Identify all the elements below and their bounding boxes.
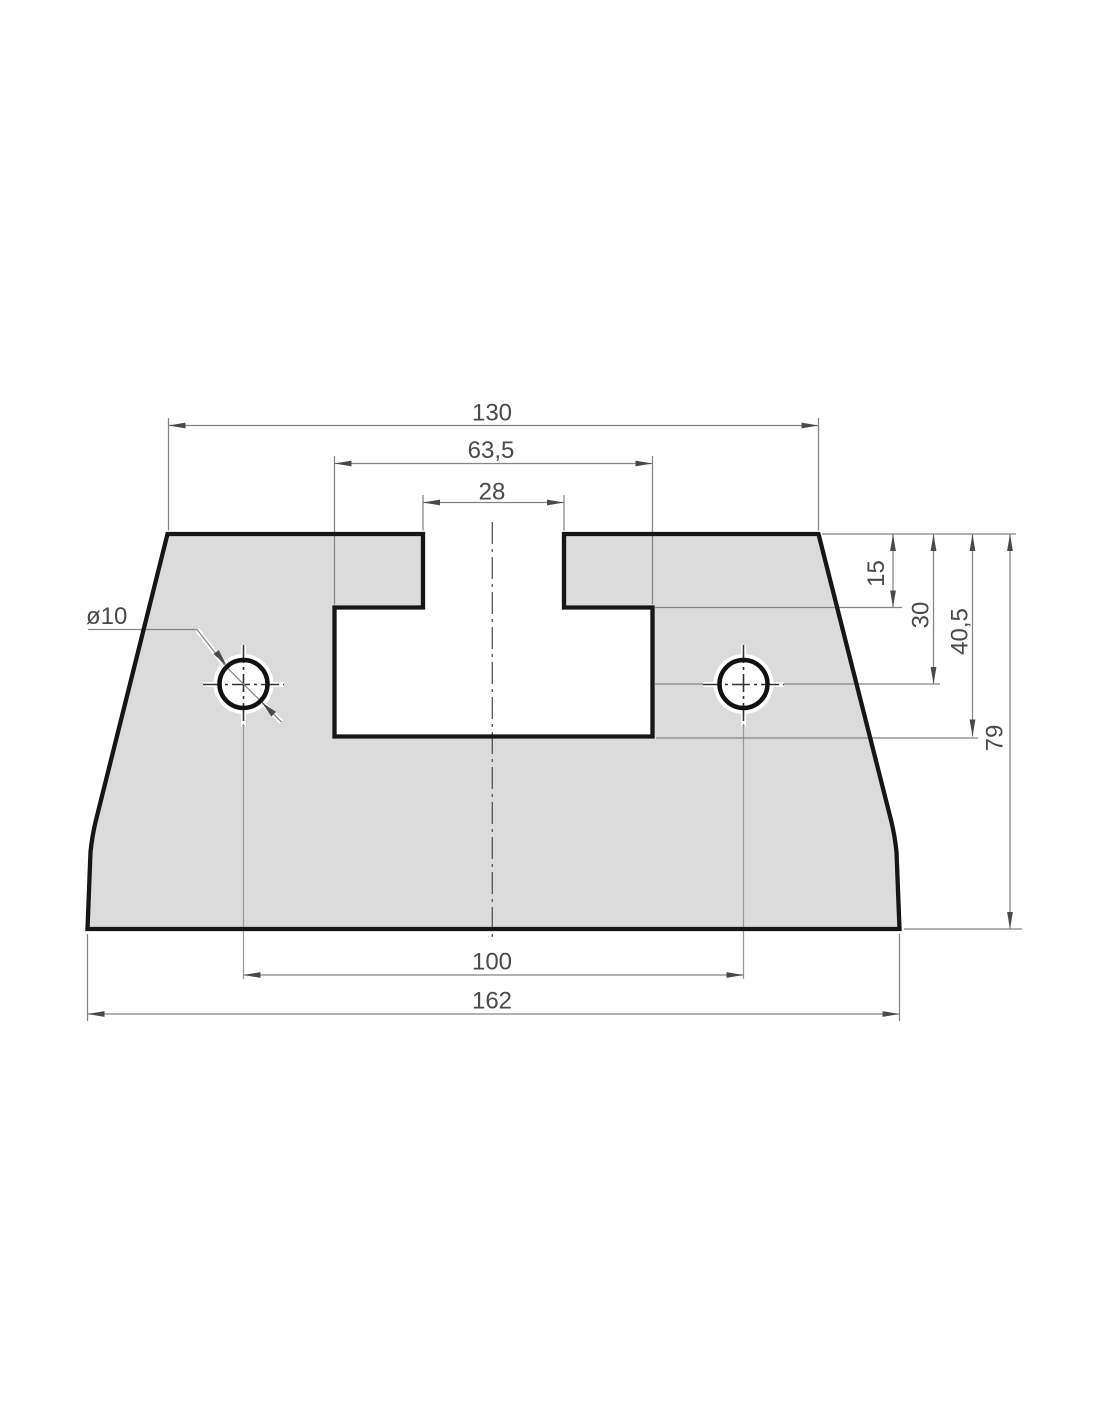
svg-text:100: 100 <box>472 949 512 976</box>
svg-text:162: 162 <box>472 988 512 1015</box>
svg-text:79: 79 <box>982 725 1009 752</box>
svg-text:28: 28 <box>479 479 506 506</box>
svg-text:63,5: 63,5 <box>468 437 515 464</box>
svg-text:15: 15 <box>863 560 890 587</box>
svg-text:130: 130 <box>472 400 512 427</box>
svg-text:30: 30 <box>908 602 935 629</box>
svg-text:ø10: ø10 <box>86 603 127 630</box>
svg-text:40,5: 40,5 <box>947 608 974 655</box>
